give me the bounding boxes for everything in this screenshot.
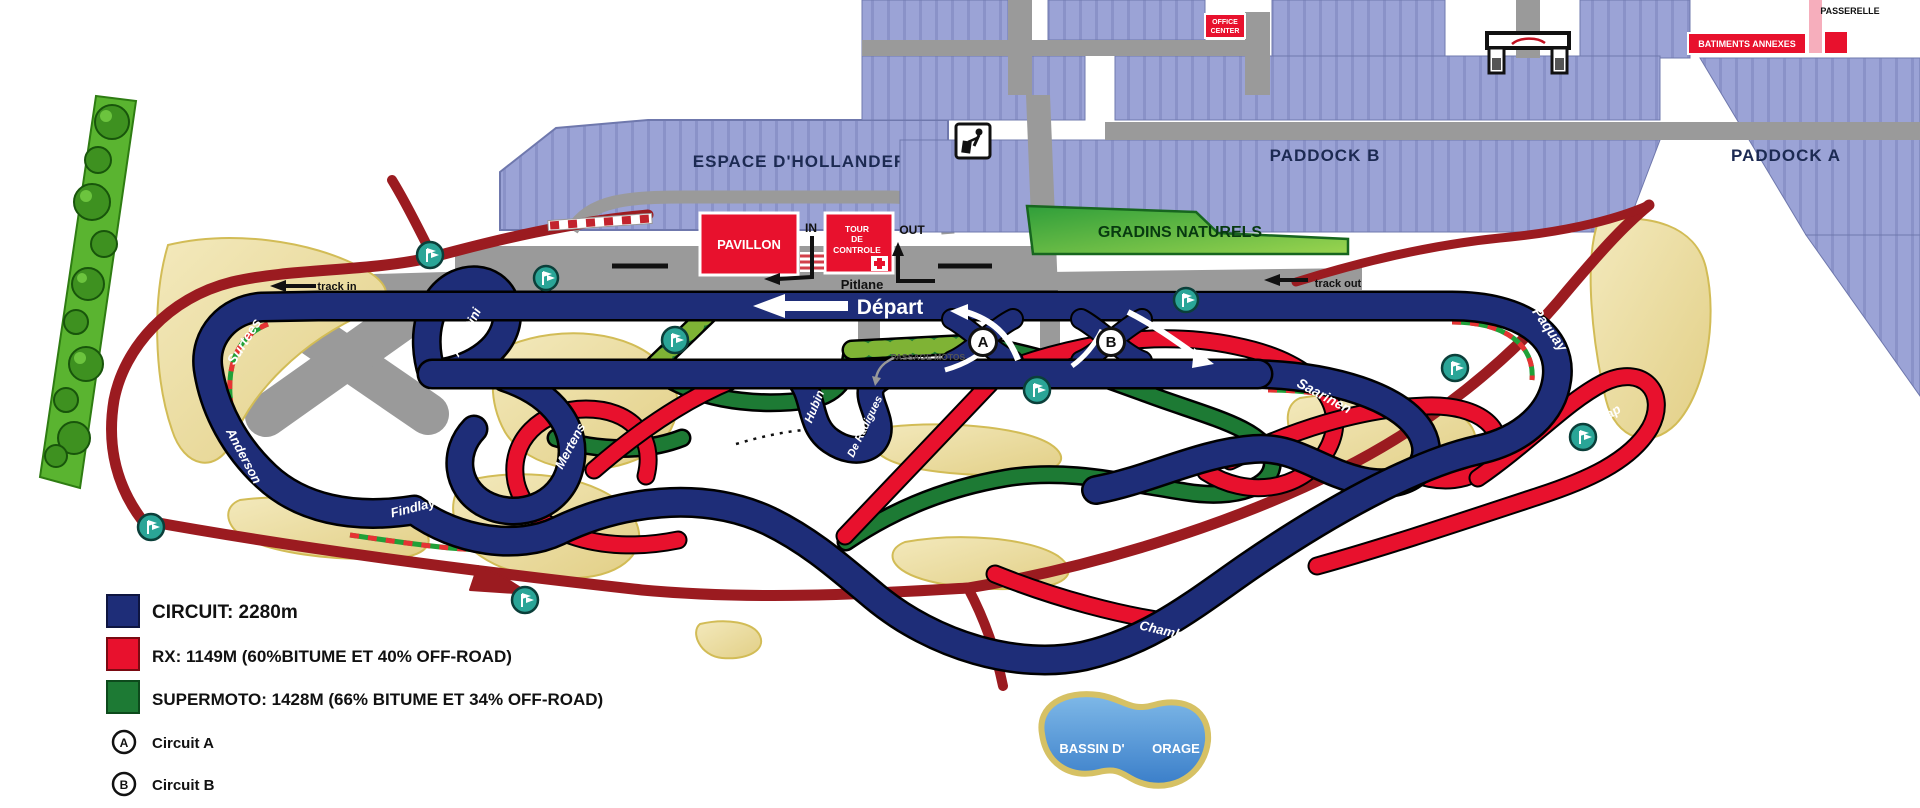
legend-circuit-b-label: Circuit B (152, 777, 215, 794)
tour-line3: CONTROLE (833, 245, 881, 255)
marshal-flag-icon (417, 242, 443, 268)
passerelle-red-block (1825, 32, 1847, 53)
pit-out-label: OUT (899, 223, 925, 237)
legend-swatch-rx (107, 638, 139, 670)
tour-line1: TOUR (845, 224, 869, 234)
legend-circuit-a: A Circuit A (113, 731, 214, 753)
marshal-flag-icon (1570, 424, 1596, 450)
marshal-flag-icon (662, 327, 688, 353)
circuit-a-letter: A (978, 334, 989, 351)
paddock-a-label: PADDOCK A (1731, 146, 1841, 165)
bassin-dorage: BASSIN D' ORAGE (1041, 694, 1208, 786)
marshal-flag-icon (512, 587, 538, 613)
legend-circuit-label: CIRCUIT: 2280m (152, 602, 298, 623)
pavillon-building: PAVILLON (700, 213, 798, 275)
batiments-annexes-label: BATIMENTS ANNEXES (1698, 39, 1796, 49)
depart-label: Départ (857, 296, 924, 319)
tour-line2: DE (851, 234, 863, 244)
pit-in-label: IN (805, 221, 817, 235)
marshal-flag-icon (1024, 377, 1050, 403)
marshal-flag-icon (138, 514, 164, 540)
gradins-naturels-label: GRADINS NATURELS (1098, 224, 1262, 241)
legend-circuit-b: B Circuit B (113, 773, 215, 795)
office-center-building: OFFICE CENTER (1205, 14, 1245, 38)
passage-motos-label: PASSAGE MOTOS (891, 352, 966, 362)
passerelle-label: PASSERELLE (1820, 6, 1879, 16)
office-center-line1: OFFICE (1212, 19, 1238, 26)
first-aid-icon (871, 256, 888, 271)
tour-de-controle-building: TOUR DE CONTROLE (825, 213, 893, 273)
batiments-annexes-building: BATIMENTS ANNEXES (1688, 33, 1806, 54)
office-center-line2: CENTER (1211, 28, 1240, 35)
circuit-map: ESPACE D'HOLLANDER PADDOCK B PADDOCK A (0, 0, 1920, 808)
marshal-flag-icon (1174, 288, 1198, 312)
legend-swatch-supermoto (107, 681, 139, 713)
marshal-flag-icon (534, 266, 558, 290)
legend-supermoto-label: SUPERMOTO: 1428M (66% BITUME ET 34% OFF-… (152, 690, 603, 709)
circuit-a-marker: A (970, 329, 997, 356)
legend-circuit-a-marker: A (120, 736, 129, 750)
paddock-b-label: PADDOCK B (1270, 146, 1381, 165)
track-out-label: track out (1315, 278, 1362, 290)
track-in-label: track in (317, 281, 356, 293)
marshal-flag-icon (1442, 355, 1468, 381)
pitlane-label: Pitlane (841, 277, 884, 292)
circuit-b-marker: B (1098, 329, 1125, 356)
waste-disposal-icon (956, 124, 990, 158)
espace-dhollander-label: ESPACE D'HOLLANDER (693, 152, 907, 171)
legend-circuit-b-marker: B (120, 778, 129, 792)
circuit-b-letter: B (1106, 334, 1117, 351)
bassin-label-2: ORAGE (1152, 741, 1200, 756)
legend-swatch-circuit (107, 595, 139, 627)
legend-circuit-a-label: Circuit A (152, 735, 214, 752)
legend-rx-label: RX: 1149M (60%BITUME ET 40% OFF-ROAD) (152, 647, 512, 666)
pavillon-label: PAVILLON (717, 237, 781, 252)
bassin-label-1: BASSIN D' (1059, 741, 1124, 756)
